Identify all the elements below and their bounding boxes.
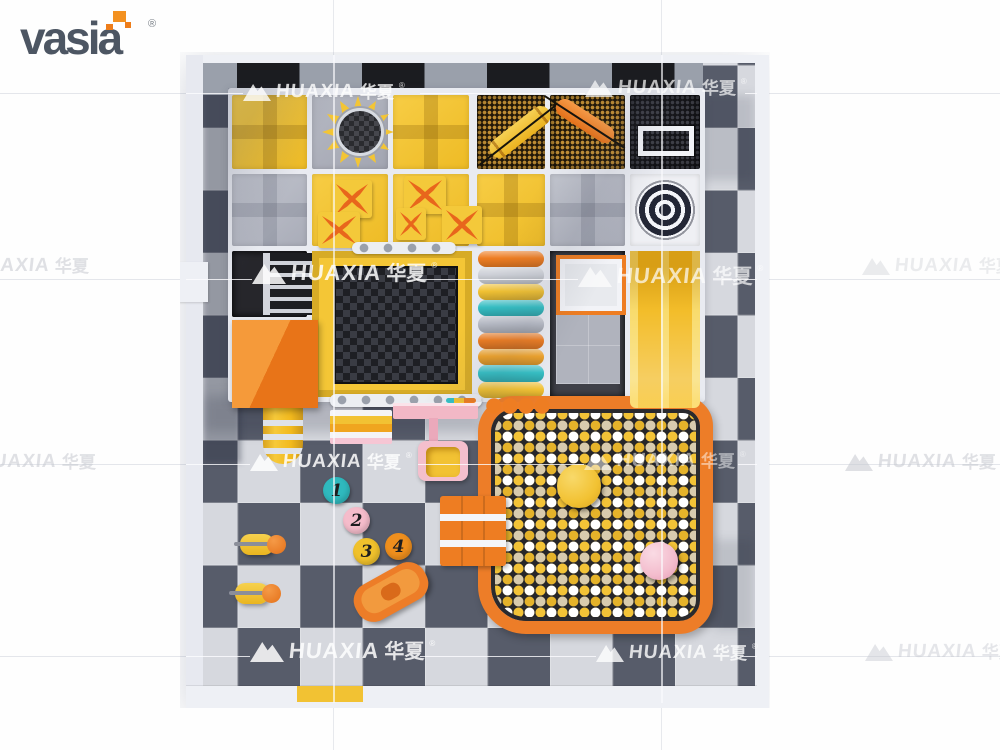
play-cell-gray bbox=[550, 174, 625, 246]
watermark: HUAXIA 华夏 ® bbox=[578, 265, 763, 287]
watermark-line bbox=[333, 55, 335, 703]
mountain-icon bbox=[865, 644, 893, 661]
guide-line bbox=[757, 93, 1000, 94]
watermark: HUAXIA 华夏 ® bbox=[250, 640, 435, 662]
stepping-stone-3: 3 bbox=[353, 538, 380, 565]
stone-number: 3 bbox=[361, 542, 373, 562]
watermark-line bbox=[420, 93, 585, 94]
platform-box bbox=[232, 320, 318, 408]
wall-left bbox=[186, 55, 203, 703]
mountain-icon bbox=[578, 267, 612, 287]
mountain-icon bbox=[596, 645, 624, 662]
pixel-arrow-icon bbox=[125, 22, 131, 28]
pixel-arrow-icon bbox=[113, 11, 126, 22]
watermark-line bbox=[186, 464, 250, 465]
watermark-faint: HUAXIA 华夏 bbox=[0, 256, 89, 275]
roller-step bbox=[478, 251, 544, 267]
roller-step bbox=[478, 316, 544, 332]
guide-line bbox=[0, 279, 186, 280]
roller-step bbox=[478, 284, 544, 300]
platform-ledge bbox=[352, 242, 456, 254]
guide-line bbox=[757, 279, 1000, 280]
watermark-faint: HUAXIA 华夏 bbox=[845, 452, 996, 471]
watermark-faint: HUAXIA 华夏 bbox=[865, 642, 1000, 661]
watermark: HUAXIA 华夏 ® bbox=[250, 452, 412, 471]
mountain-icon bbox=[250, 642, 284, 662]
mountain-icon bbox=[845, 454, 873, 471]
giant-yellow-ball bbox=[557, 464, 601, 508]
roller-steps bbox=[477, 251, 545, 398]
roller-step bbox=[478, 349, 544, 365]
mountain-icon bbox=[243, 84, 271, 101]
ball-pit-edge-cushion bbox=[486, 398, 550, 415]
play-cell-gray bbox=[232, 174, 307, 246]
mountain-icon bbox=[585, 80, 613, 97]
roller-step bbox=[478, 333, 544, 349]
striped-mats bbox=[330, 410, 392, 444]
play-cell-yellow bbox=[232, 95, 307, 169]
watermark-line bbox=[186, 93, 243, 94]
watermark-faint: HUAXIA 华夏 bbox=[862, 256, 1000, 275]
watermark-line bbox=[186, 656, 250, 657]
x-pattern-block bbox=[396, 208, 426, 240]
basketball-target bbox=[630, 174, 700, 246]
mountain-icon bbox=[862, 258, 890, 275]
ball-pit-steps bbox=[440, 496, 506, 566]
ride-on-duck bbox=[240, 534, 274, 555]
wall-bottom bbox=[186, 686, 757, 708]
x-pattern-block bbox=[442, 206, 482, 244]
guide-line bbox=[0, 93, 186, 94]
registered-mark: ® bbox=[148, 18, 156, 30]
brand-name: vasia bbox=[20, 12, 120, 64]
kids-table bbox=[393, 403, 478, 419]
stone-number: 4 bbox=[393, 537, 405, 557]
mountain-icon bbox=[250, 454, 278, 471]
stone-number: 2 bbox=[351, 511, 363, 531]
entrance-mat bbox=[297, 686, 363, 702]
mesh-window-panel bbox=[630, 95, 700, 169]
stepping-stone-4: 4 bbox=[385, 533, 412, 560]
watermark: HUAXIA 华夏 ® bbox=[596, 643, 758, 662]
watermark: HUAXIA 华夏 ® bbox=[584, 451, 746, 470]
watermark-line bbox=[420, 656, 596, 657]
watermark-line bbox=[661, 55, 663, 703]
wall-right bbox=[755, 55, 769, 708]
pixel-arrow-icon bbox=[106, 24, 113, 30]
sun-lookout bbox=[312, 95, 388, 169]
play-cell-yellow bbox=[477, 174, 545, 246]
wall-notch bbox=[178, 262, 208, 302]
stepping-stone-2: 2 bbox=[343, 507, 370, 534]
roller-step bbox=[478, 300, 544, 316]
ride-on-duck bbox=[235, 583, 269, 604]
watermark: HUAXIA 华夏 ® bbox=[243, 82, 405, 101]
kids-chair bbox=[418, 441, 468, 481]
watermark-line bbox=[186, 279, 252, 280]
stepping-stone-1: 1 bbox=[323, 477, 350, 504]
playground-render: vasia ® bbox=[0, 0, 1000, 750]
watermark: HUAXIA 华夏 ® bbox=[585, 78, 747, 97]
roller-step bbox=[478, 365, 544, 381]
watermark-line bbox=[416, 279, 578, 280]
guide-line bbox=[0, 656, 186, 657]
playground-floorplan: 1 2 3 4 HUAXIA 华夏 ® HUAXIA bbox=[0, 0, 1000, 750]
watermark: HUAXIA 华夏 ® bbox=[252, 262, 437, 284]
mountain-icon bbox=[252, 264, 286, 284]
watermark-line bbox=[745, 93, 757, 94]
brand-logo: vasia ® bbox=[20, 10, 180, 68]
watermark-faint: HUAXIA 华夏 bbox=[0, 452, 96, 471]
roller-step bbox=[478, 267, 544, 283]
mountain-icon bbox=[584, 453, 612, 470]
ball-pit bbox=[478, 396, 713, 634]
play-cell-yellow bbox=[393, 95, 469, 169]
watermark-line bbox=[418, 464, 584, 465]
wall-top bbox=[186, 55, 757, 63]
giant-pink-ball bbox=[640, 542, 678, 580]
